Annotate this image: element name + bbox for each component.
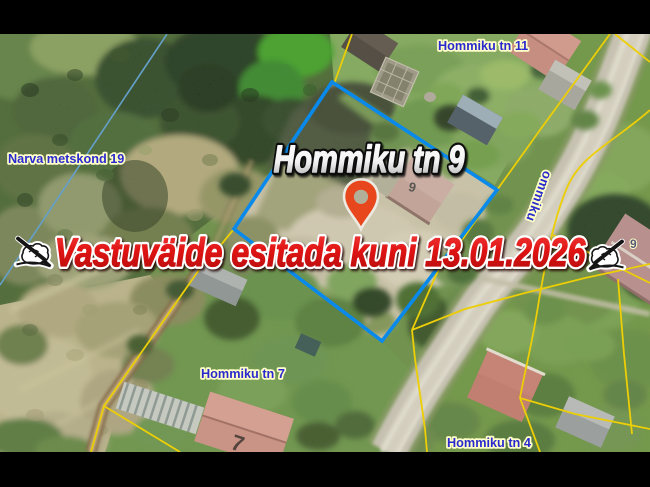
svg-text:Hommiku tn 4: Hommiku tn 4 <box>447 436 531 450</box>
svg-text:Hommiku tn 9: Hommiku tn 9 <box>274 138 465 181</box>
svg-text:Hommiku tn 7: Hommiku tn 7 <box>201 367 285 381</box>
svg-text:Hommiku tn 11: Hommiku tn 11 <box>438 39 528 53</box>
svg-text:9: 9 <box>630 237 637 251</box>
svg-text:Narva metskond 19: Narva metskond 19 <box>8 152 124 166</box>
svg-text:Vastuväide esitada kuni 13.01.: Vastuväide esitada kuni 13.01.2026 <box>55 230 586 275</box>
